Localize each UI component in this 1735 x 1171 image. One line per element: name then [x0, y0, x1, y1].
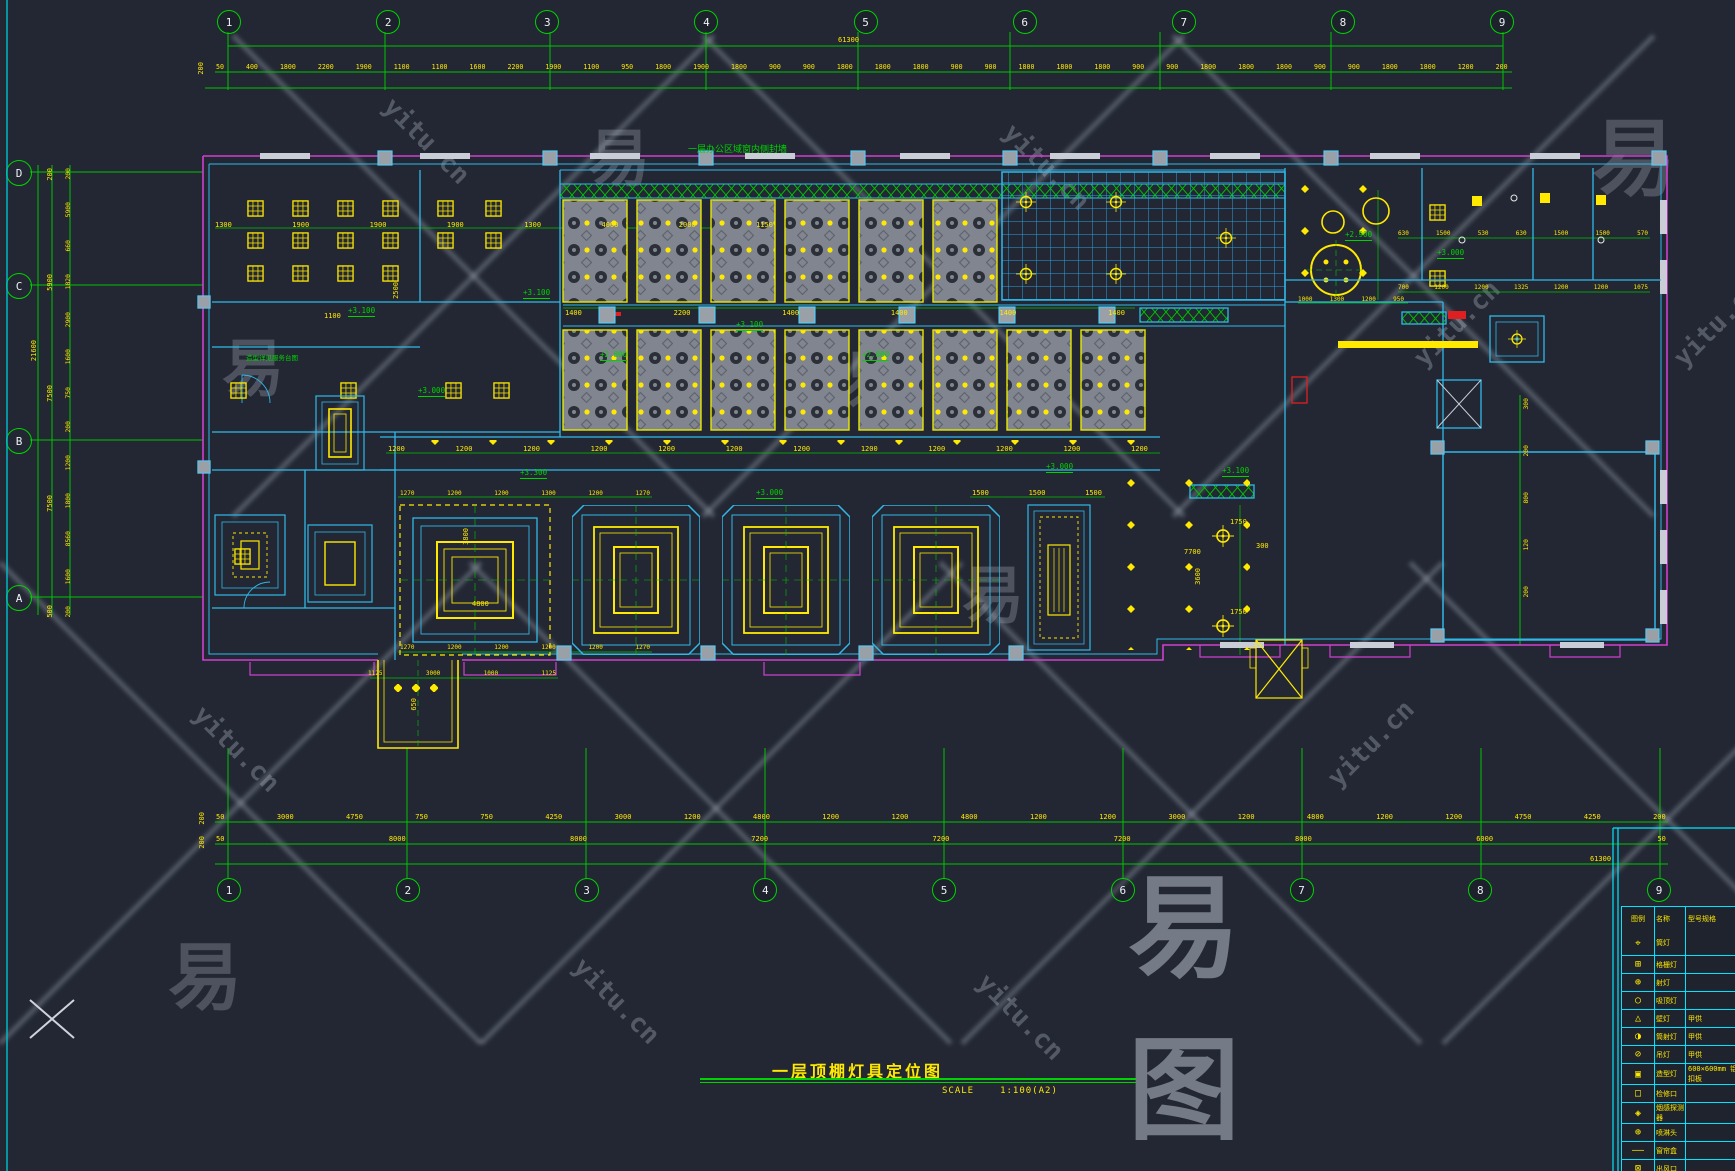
dim-value: 120: [1522, 539, 1530, 551]
dim-value: 7200: [751, 835, 768, 843]
dim-value: 4250: [545, 813, 562, 821]
level-mark: +3.100: [348, 306, 375, 317]
dim-value: 1200: [588, 644, 602, 652]
dim-chain-bottom-1: 5030004750750750425030001200480012001200…: [216, 813, 1666, 821]
drawing-scale: SCALE 1:100(A2): [942, 1086, 1058, 1096]
dim-value: 1100: [394, 63, 410, 71]
legend-symbol-icon: ⊘: [1622, 1046, 1655, 1063]
dim-single: 3600: [1194, 568, 1202, 585]
dim-single: 4800: [472, 600, 489, 608]
dim-value: 1800: [1420, 63, 1436, 71]
dim-value: 1200: [684, 813, 701, 821]
dim-value: 1200: [1554, 284, 1568, 292]
dim-value: 8560: [64, 531, 72, 546]
level-mark: +3.100: [523, 288, 550, 299]
dim-right-top: 630150053063015001500570: [1398, 230, 1648, 238]
dim-value: 1600: [64, 349, 72, 364]
dim-value: 3000: [277, 813, 294, 821]
dim-value: 4750: [346, 813, 363, 821]
dim-value: 750: [415, 813, 428, 821]
grid-bubble: 9: [1490, 10, 1514, 34]
dim-value: 500: [46, 605, 54, 618]
dim-value: 1200: [1361, 296, 1375, 304]
dim-value: 1200: [456, 445, 473, 453]
legend-header-name: 名称: [1655, 907, 1686, 931]
dim-value: 1150: [756, 221, 773, 229]
dim-value: 1200: [447, 644, 461, 652]
coffer-ceilings-bcd: [572, 505, 1000, 655]
dim-value: 1800: [1056, 63, 1072, 71]
dim-value: 1200: [388, 445, 405, 453]
level-mark: +3.100: [736, 320, 763, 331]
dim-value: 50: [216, 835, 224, 843]
dim-value: 1270: [636, 644, 650, 652]
dim-value: 1800: [655, 63, 671, 71]
dim-coffer-top: 127012001200130012001270: [400, 490, 650, 498]
dim-value: 1100: [583, 63, 599, 71]
dim-total-bottom: 61300: [1590, 855, 1611, 863]
dim-value: 1270: [636, 490, 650, 498]
dim-value: 900: [1132, 63, 1144, 71]
dim-value: 200: [64, 606, 72, 618]
dim-value: 1900: [370, 221, 387, 229]
dim-value: 530: [1478, 230, 1489, 238]
dim-value: 1600: [64, 569, 72, 584]
corner-x-mark: [30, 1000, 74, 1038]
dim-value: 900: [985, 63, 997, 71]
dim-total-left: 21600: [30, 340, 38, 361]
dim-value: 900: [1314, 63, 1326, 71]
dim-value: 5900: [64, 202, 72, 217]
dim-value: 1270: [400, 644, 414, 652]
dim-value: 400: [246, 63, 258, 71]
legend-item-name: 壁灯: [1655, 1010, 1686, 1027]
legend-item-name: 筒灯: [1655, 931, 1686, 955]
legend-item-name: 筒射灯: [1655, 1028, 1686, 1045]
dim-corridor: 1200120012001200120012001200120012001200…: [388, 445, 1148, 453]
dim-value: 8000: [389, 835, 406, 843]
grid-bubble-row: C: [6, 273, 32, 299]
legend-symbol-icon: ⊞: [1622, 956, 1655, 973]
legend-symbol-icon: ⌖: [1622, 931, 1655, 955]
dim-value: 1200: [1030, 813, 1047, 821]
dim-value: 1500: [1554, 230, 1568, 238]
grid-bubble: 5: [854, 10, 878, 34]
dim-value: 1200: [541, 644, 555, 652]
note-top: 一层办公区域窗内侧封墙: [688, 142, 787, 155]
dim-chain-left: 200590075007500500: [46, 168, 54, 618]
legend-item-name: 检修口: [1655, 1085, 1686, 1102]
legend-header-spec: 型号规格: [1686, 914, 1735, 924]
dim-value: 1900: [693, 63, 709, 71]
dim-value: 900: [1348, 63, 1360, 71]
legend-item-name: 吊灯: [1655, 1046, 1686, 1063]
dim-panel-gaps: 140022001400140014001400: [565, 309, 1125, 317]
dim-value: 1200: [1445, 813, 1462, 821]
grid-bubble-row: D: [6, 160, 32, 186]
dim-single: 300: [1256, 542, 1269, 550]
dim-value: 1800: [1019, 63, 1035, 71]
dim-value: 1200: [1099, 813, 1116, 821]
dim-value: 1800: [280, 63, 296, 71]
dim-value: 1000: [484, 670, 498, 678]
dim-value: 1270: [400, 490, 414, 498]
dim-value: 1800: [731, 63, 747, 71]
elevator-shaft: [1250, 640, 1308, 698]
dim-value: 1200: [1474, 284, 1488, 292]
dim-value: 1800: [1382, 63, 1398, 71]
dim-value: 3000: [615, 813, 632, 821]
legend-item-name: 烟感探测器: [1655, 1103, 1686, 1123]
dim-value: 1500: [1029, 489, 1046, 497]
dim-value: 1200: [447, 490, 461, 498]
grid-bubble: 7: [1290, 878, 1314, 902]
legend-symbol-icon: ⊠: [1622, 1160, 1655, 1171]
dim-value: 2900: [64, 312, 72, 327]
dim-value: 1800: [64, 493, 72, 508]
legend-item-spec: 600×600mm 铝扣板: [1686, 1064, 1735, 1084]
grid-bubble: 8: [1331, 10, 1355, 34]
legend-row: ◑ 筒射灯 甲供: [1622, 1027, 1735, 1045]
dim-chain-bottom-2: 50800080007200720072008000600050: [216, 835, 1666, 843]
grid-bubble: 1: [217, 878, 241, 902]
dim-value: 1200: [1063, 445, 1080, 453]
dim-value: 700: [1398, 284, 1409, 292]
dim-value: 1500: [1085, 489, 1102, 497]
legend-symbol-icon: ◈: [1622, 1103, 1655, 1123]
dim-value: 200: [1653, 813, 1666, 821]
dim-value: 1400: [891, 309, 908, 317]
legend-item-name: 出风口: [1655, 1160, 1686, 1171]
dim-value: 1800: [913, 63, 929, 71]
dim-value: 2200: [507, 63, 523, 71]
level-mark: +3.000: [1437, 248, 1464, 259]
dim-value: 200: [1522, 586, 1530, 598]
dim-value: 3000: [1168, 813, 1185, 821]
legend-row: ⊠ 出风口: [1622, 1159, 1735, 1171]
dim-value: 1500: [1436, 230, 1450, 238]
scale-value: 1:100(A2): [1000, 1086, 1058, 1096]
dim-value: 8000: [1295, 835, 1312, 843]
dim-value: 1200: [1238, 813, 1255, 821]
dim-value: 660: [64, 240, 72, 252]
grid-bubbles-top: 123456789: [217, 10, 1514, 34]
dim-value: 1200: [928, 445, 945, 453]
legend-row: ▣ 造型灯 600×600mm 铝扣板: [1622, 1063, 1735, 1084]
dim-value: 1300: [1330, 296, 1344, 304]
dim-value: 1200: [822, 813, 839, 821]
dim-value: 6000: [1476, 835, 1493, 843]
dim-value: 1200: [1434, 284, 1448, 292]
legend-item-name: 喷淋头: [1655, 1124, 1686, 1141]
dim-value: 900: [803, 63, 815, 71]
dim-value: 1200: [1458, 63, 1474, 71]
grid-bubble: 6: [1013, 10, 1037, 34]
legend-header-symbol: 图例: [1622, 907, 1655, 931]
dim-canopy: 1125300010001125: [368, 670, 556, 678]
legend-row: □ 检修口: [1622, 1084, 1735, 1102]
dim-single: 1100: [324, 312, 341, 320]
dim-edge: 200: [198, 836, 206, 849]
dim-value: 1800: [1094, 63, 1110, 71]
title-underline-2: [700, 1082, 1136, 1083]
level-mark: +3.300: [520, 468, 547, 479]
dim-value: 200: [64, 168, 72, 180]
legend-item-spec: 甲供: [1686, 1032, 1735, 1042]
dim-value: 200: [46, 168, 54, 181]
dim-value: 1200: [861, 445, 878, 453]
grid-bubble: 7: [1172, 10, 1196, 34]
dim-value: 50: [1657, 835, 1665, 843]
dim-value: 1300: [215, 221, 232, 229]
grid-bubble: 1: [217, 10, 241, 34]
open-zone-lights: [1100, 475, 1250, 650]
dim-value: 1000: [1298, 296, 1312, 304]
legend-item-name: 射灯: [1655, 974, 1686, 991]
legend-table: 图例 名称 型号规格 ⌖ 筒灯 ⊞ 格栅灯 ⊕ 射灯 ○ 吸顶灯: [1621, 906, 1735, 1171]
dim-value: 1900: [356, 63, 372, 71]
legend-row: ⊞ 格栅灯: [1622, 955, 1735, 973]
dim-value: 1200: [793, 445, 810, 453]
grid-bubble: 5: [932, 878, 956, 902]
level-mark: +3.000: [418, 386, 445, 397]
dim-value: 750: [480, 813, 493, 821]
dim-value: 4000: [601, 221, 618, 229]
dim-value: 4800: [961, 813, 978, 821]
dim-value: 1800: [1238, 63, 1254, 71]
dim-value: 1400: [1108, 309, 1125, 317]
grid-bubble-row: A: [6, 585, 32, 611]
dim-value: 800: [1522, 492, 1530, 504]
dim-value: 1200: [591, 445, 608, 453]
title-underline: [700, 1078, 1136, 1080]
dim-value: 1800: [1276, 63, 1292, 71]
grid-bubble: 4: [753, 878, 777, 902]
dim-value: 1125: [368, 670, 382, 678]
level-mark: +2.800: [862, 350, 889, 361]
legend-row: △ 壁灯 甲供: [1622, 1009, 1735, 1027]
legend-symbol-icon: ——: [1622, 1142, 1655, 1159]
dim-value: 4250: [1584, 813, 1601, 821]
dim-value: 3000: [426, 670, 440, 678]
dim-circle-row: 100013001200950: [1298, 296, 1404, 304]
dim-value: 900: [1166, 63, 1178, 71]
legend-symbol-icon: ◑: [1622, 1028, 1655, 1045]
dim-value: 1200: [658, 445, 675, 453]
dim-value: 1400: [1000, 309, 1017, 317]
scale-label: SCALE: [942, 1086, 974, 1096]
grid-bubbles-bottom: 123456789: [217, 878, 1671, 902]
grid-bubble: 2: [376, 10, 400, 34]
dim-value: 1200: [494, 490, 508, 498]
dim-value: 50: [216, 63, 224, 71]
dim-value: 1900: [292, 221, 309, 229]
dim-value: 630: [1398, 230, 1409, 238]
legend-item-name: 吸顶灯: [1655, 992, 1686, 1009]
dim-value: 300: [1522, 398, 1530, 410]
dim-value: 1075: [1634, 284, 1648, 292]
legend-row: ⊕ 喷淋头: [1622, 1123, 1735, 1141]
level-mark: +3.000: [756, 488, 783, 499]
dim-value: 50: [216, 813, 224, 821]
legend-header-row: 图例 名称 型号规格: [1622, 907, 1735, 931]
dim-chain-left-sub: 2005900660182029001600750200120018008560…: [64, 168, 72, 618]
dim-value: 4800: [753, 813, 770, 821]
dim-value: 1400: [565, 309, 582, 317]
dim-value: 1200: [588, 490, 602, 498]
corridor: [380, 437, 1160, 470]
dim-single: 1750: [1230, 518, 1247, 526]
dim-value: 1100: [432, 63, 448, 71]
skylight-grid-ceiling: [1002, 172, 1285, 300]
dim-value: 1300: [524, 221, 541, 229]
dim-value: 1200: [523, 445, 540, 453]
dim-coffer-mid: 150015001500: [972, 489, 1102, 497]
dim-value: 7500: [46, 495, 54, 512]
dim-value: 1400: [782, 309, 799, 317]
dim-coffer-bottom: 127012001200120012001270: [400, 644, 650, 652]
grid-bubble: 9: [1647, 878, 1671, 902]
dim-value: 1200: [494, 644, 508, 652]
dim-value: 2000: [679, 221, 696, 229]
dim-value: 1325: [1514, 284, 1528, 292]
dim-value: 7200: [933, 835, 950, 843]
grid-bubble: 3: [575, 878, 599, 902]
dim-value: 7500: [46, 385, 54, 402]
level-mark: +2.800: [600, 350, 627, 361]
dim-value: 750: [64, 387, 72, 399]
dim-value: 570: [1637, 230, 1648, 238]
level-mark: +3.000: [1046, 462, 1073, 473]
dim-value: 7200: [1114, 835, 1131, 843]
level-mark: +2.900: [1345, 230, 1372, 241]
dim-edge: 200: [197, 62, 205, 75]
legend-row: ○ 吸顶灯: [1622, 991, 1735, 1009]
small-coffers-left: [215, 396, 372, 602]
dim-value: 200: [64, 421, 72, 433]
dim-value: 950: [621, 63, 633, 71]
dim-value: 1200: [64, 455, 72, 470]
legend-item-name: 窗帘盒: [1655, 1142, 1686, 1159]
dim-value: 1800: [837, 63, 853, 71]
dim-value: 1200: [1594, 284, 1608, 292]
cad-canvas: yitu.cn yitu.cn yitu.cn yitu.cn yitu.cn …: [0, 0, 1735, 1171]
dim-value: 1200: [892, 813, 909, 821]
dim-single: 3800: [462, 528, 470, 545]
rooms-top-left: [212, 170, 560, 660]
dim-single: 650: [410, 698, 418, 711]
dim-value: 4750: [1515, 813, 1532, 821]
legend-item-name: 格栅灯: [1655, 956, 1686, 973]
grid-bubble: 8: [1468, 878, 1492, 902]
grid-bubble: 6: [1111, 878, 1135, 902]
dim-value: 1900: [447, 221, 464, 229]
legend-symbol-icon: ○: [1622, 992, 1655, 1009]
legend-row: ⌖ 筒灯: [1622, 931, 1735, 955]
dim-chain-right: 300200800120200: [1522, 398, 1530, 598]
grid-bubble-row: B: [6, 428, 32, 454]
legend-item-spec: 甲供: [1686, 1014, 1735, 1024]
dim-value: 1200: [996, 445, 1013, 453]
dim-single: 2500: [392, 282, 400, 299]
dim-value: 8000: [570, 835, 587, 843]
legend-symbol-icon: ⊕: [1622, 1124, 1655, 1141]
dim-value: 1500: [1595, 230, 1609, 238]
dim-value: 950: [1393, 296, 1404, 304]
dim-value: 1800: [875, 63, 891, 71]
legend-row: ⊕ 射灯: [1622, 973, 1735, 991]
legend-row: ⊘ 吊灯 甲供: [1622, 1045, 1735, 1063]
dim-value: 1200: [1131, 445, 1148, 453]
dim-value: 1820: [64, 274, 72, 289]
grid-bubble: 4: [694, 10, 718, 34]
grid-bubble: 2: [396, 878, 420, 902]
dim-value: 630: [1516, 230, 1527, 238]
dim-value: 900: [769, 63, 781, 71]
floor-plan-drawing: [0, 0, 1735, 1171]
note-service-desk: 造型详见服务台图: [246, 352, 298, 362]
dim-value: 1125: [542, 670, 556, 678]
dim-edge: 200: [198, 812, 206, 825]
chandelier-circles: [1290, 175, 1390, 300]
dim-value: 1500: [972, 489, 989, 497]
legend-symbol-icon: □: [1622, 1085, 1655, 1102]
legend-row: —— 窗帘盒: [1622, 1141, 1735, 1159]
dim-value: 200: [1522, 445, 1530, 457]
legend-item-name: 造型灯: [1655, 1064, 1686, 1084]
dim-value: 1800: [1200, 63, 1216, 71]
dim-value: 1200: [726, 445, 743, 453]
dim-value: 1300: [541, 490, 555, 498]
dim-room-topleft: 13001900190019001300400020001150: [215, 221, 773, 229]
viewport-edge-line: [6, 0, 8, 1171]
dim-value: 1600: [470, 63, 486, 71]
legend-rows: ⌖ 筒灯 ⊞ 格栅灯 ⊕ 射灯 ○ 吸顶灯 △ 壁灯 甲供 ◑ 筒: [1622, 931, 1735, 1171]
dim-total-top: 61300: [838, 36, 859, 44]
dim-value: 4800: [1307, 813, 1324, 821]
dim-chain-top: 5040018002200190011001100160022001900110…: [216, 63, 1508, 71]
dim-value: 900: [951, 63, 963, 71]
dim-value: 200: [1496, 63, 1508, 71]
legend-row: ◈ 烟感探测器: [1622, 1102, 1735, 1123]
legend-symbol-icon: △: [1622, 1010, 1655, 1027]
dim-value: 1200: [1376, 813, 1393, 821]
coffer-ceiling-a: [400, 505, 550, 655]
dim-value: 5900: [46, 274, 54, 291]
dim-value: 2200: [674, 309, 691, 317]
dim-single: 7700: [1184, 548, 1201, 556]
legend-symbol-icon: ⊕: [1622, 974, 1655, 991]
legend-symbol-icon: ▣: [1622, 1064, 1655, 1084]
dim-value: 1900: [545, 63, 561, 71]
coffer-ceiling-narrow: [1028, 505, 1090, 650]
grid-bubble: 3: [535, 10, 559, 34]
level-mark: +3.100: [1222, 466, 1249, 477]
dim-value: 2200: [318, 63, 334, 71]
dim-right-mid: 700120012001325120012001075: [1398, 284, 1648, 292]
dim-single: 1750: [1230, 608, 1247, 616]
legend-item-spec: 甲供: [1686, 1050, 1735, 1060]
